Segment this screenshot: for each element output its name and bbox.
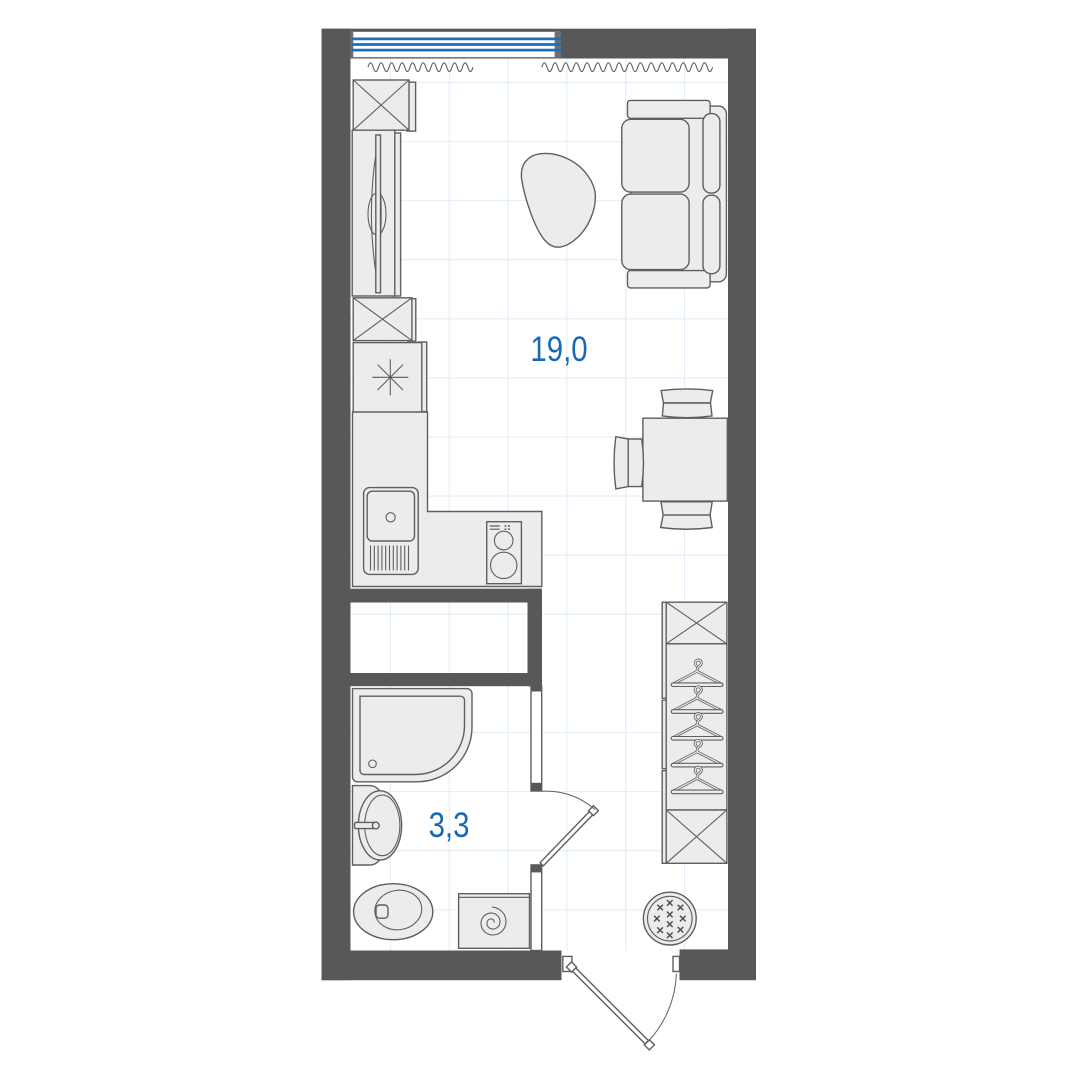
svg-text:3,3: 3,3 (429, 806, 470, 845)
svg-text:19,0: 19,0 (530, 330, 587, 369)
